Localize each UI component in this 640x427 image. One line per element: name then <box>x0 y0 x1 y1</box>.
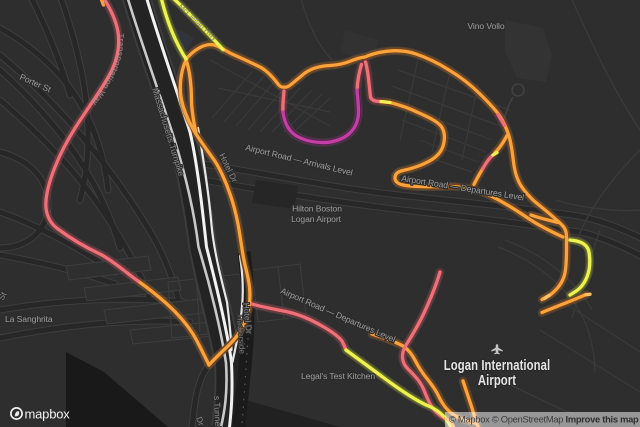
svg-text:Airport: Airport <box>478 372 517 389</box>
svg-text:mapbox: mapbox <box>25 407 71 422</box>
svg-text:Hilton Boston: Hilton Boston <box>292 204 342 214</box>
svg-text:s Tunnel: s Tunnel <box>212 396 223 427</box>
svg-text:Logan Airport: Logan Airport <box>291 214 342 224</box>
svg-text:La Sanghrita: La Sanghrita <box>5 314 53 324</box>
svg-text:© Mapbox © OpenStreetMap Impr: © Mapbox © OpenStreetMap Improve this ma… <box>449 415 639 425</box>
svg-text:Vino Vollo: Vino Vollo <box>467 21 504 31</box>
svg-text:Legal's Test Kitchen: Legal's Test Kitchen <box>301 371 375 381</box>
